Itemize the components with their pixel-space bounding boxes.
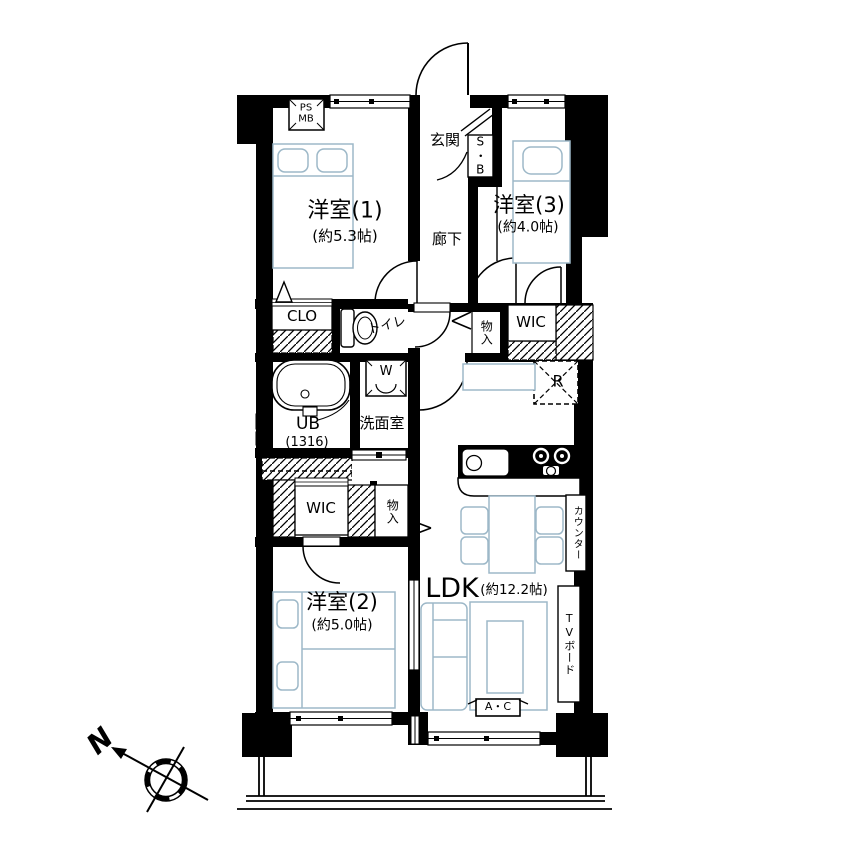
ldk-name: LDK <box>425 575 479 603</box>
washroom-label: 洗面室 <box>359 416 404 432</box>
compass <box>111 747 208 812</box>
fridge-label: R <box>552 374 563 391</box>
room1-name: 洋室(1) <box>307 199 382 222</box>
shoe-box-label: S・B <box>474 135 487 178</box>
storage-lower-label: 物入 <box>386 499 399 525</box>
ps-mb-label: PS MB <box>298 104 314 125</box>
ldk-size: (約12.2帖) <box>480 583 548 597</box>
unit-bath-label: UB <box>296 416 320 434</box>
room2-name: 洋室(2) <box>306 591 378 613</box>
hallway-label: 廊下 <box>432 232 462 248</box>
washer-label: W <box>380 365 393 379</box>
kitchen-cabinet <box>463 364 535 390</box>
sofa <box>421 603 467 710</box>
balcony <box>237 757 612 809</box>
room2-size: (約5.0帖) <box>311 619 372 634</box>
room3-size: (約4.0帖) <box>497 221 558 236</box>
tv-board-label: TVボード <box>563 612 575 676</box>
wic-upper-label: WIC <box>516 315 546 331</box>
stove <box>531 447 573 478</box>
closet-label: CLO <box>287 309 317 325</box>
washroom-door <box>352 450 406 460</box>
storage-upper-label: 物入 <box>480 320 493 346</box>
ac-label: A・C <box>485 701 511 713</box>
entrance-label: 玄関 <box>430 133 460 149</box>
floor-plan: PS MB 玄関 S・B 洋室(1) (約5.3帖) 廊下 洋室(3) (約4.… <box>0 0 855 856</box>
dining-set <box>461 496 563 573</box>
wic-lower-label: WIC <box>306 501 336 517</box>
unit-bath-size: (1316) <box>285 436 328 450</box>
coffee-table <box>487 621 523 693</box>
room1-size: (約5.3帖) <box>312 229 378 245</box>
counter-label: カウンター <box>571 506 582 561</box>
room3-name: 洋室(3) <box>493 194 565 216</box>
floor-plan-drawing <box>0 0 855 856</box>
